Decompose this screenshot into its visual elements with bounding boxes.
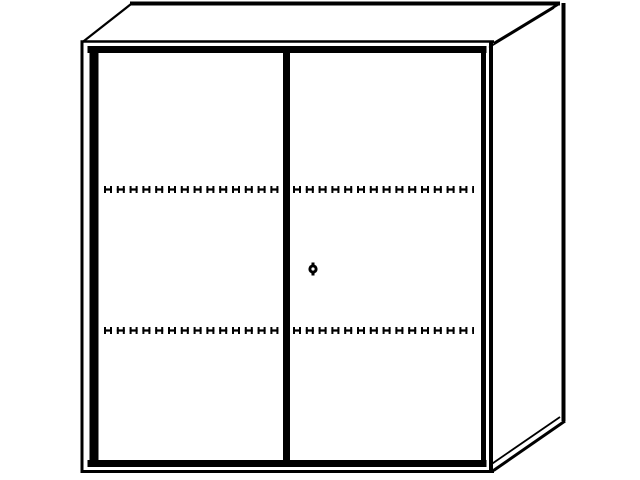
cabinet-svg (0, 0, 640, 480)
screenshot-canvas (0, 0, 640, 480)
lock-keyhole (308, 263, 317, 276)
top-left-edge (82, 3, 133, 43)
doors (88, 46, 487, 467)
top-right-edge-outer (494, 4, 560, 44)
keyhole-center-hole (311, 267, 314, 270)
side-bottom-edge-outer (494, 421, 566, 471)
right-side-panel (490, 3, 566, 471)
cabinet-drawing (0, 0, 640, 480)
side-bottom-edge-inner (490, 417, 561, 466)
top-panel (81, 3, 561, 48)
top-right-edge-inner (489, 8, 554, 48)
